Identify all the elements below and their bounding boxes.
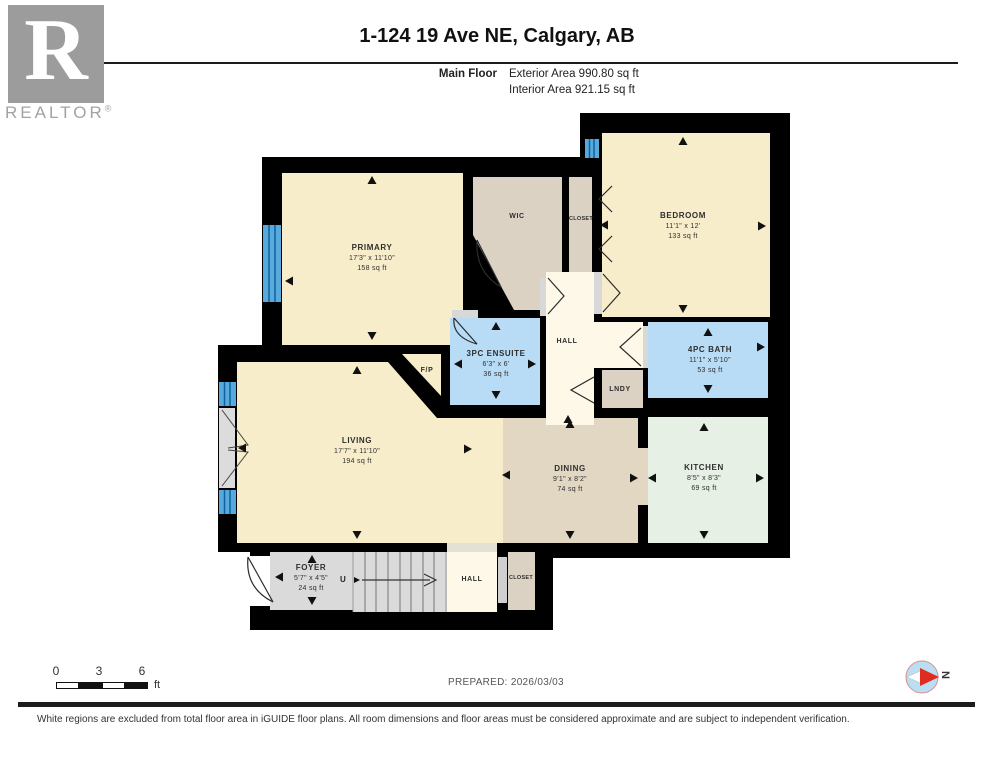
- floor-plan-svg: [0, 0, 994, 768]
- room-label-fireplace: F/P: [421, 366, 434, 376]
- room-label-dining: DINING 9'1" x 8'2" 74 sq ft: [553, 463, 587, 495]
- room-label-closet-lower: CLOSET: [509, 575, 533, 583]
- scale-bar: [56, 682, 148, 689]
- window-primary: [263, 225, 281, 302]
- floor-plan-page: R REALTOR® 1-124 19 Ave NE, Calgary, AB …: [0, 0, 994, 768]
- room-label-hall-lower: HALL: [461, 575, 482, 585]
- room-label-foyer: FOYER 5'7" x 4'5" 24 sq ft: [294, 562, 328, 594]
- room-label-closet-upper: CLOSET: [569, 216, 593, 224]
- prepared-date: PREPARED: 2026/03/03: [448, 677, 564, 688]
- window-bedroom: [585, 139, 599, 158]
- window-living-lower: [219, 490, 236, 514]
- bedroom-door-gap: [594, 272, 602, 314]
- footer-rule: [18, 702, 975, 707]
- compass-north-label: N: [939, 671, 951, 679]
- kitchen-doorway: [638, 448, 648, 505]
- scale-tick-6: 6: [132, 664, 152, 678]
- scale-tick-0: 0: [46, 664, 66, 678]
- hall-primary-door-gap: [540, 278, 546, 316]
- entry-notch: [238, 556, 270, 606]
- window-living-upper: [219, 382, 236, 406]
- scale-unit-label: ft: [154, 679, 160, 691]
- room-label-living: LIVING 17'7" x 11'10" 194 sq ft: [334, 435, 380, 467]
- stairs-up-label: U: [340, 575, 346, 584]
- room-label-bath: 4PC BATH 11'1" x 5'10" 53 sq ft: [688, 344, 732, 376]
- closet-lower-door: [498, 557, 507, 603]
- room-label-lndy: LNDY: [609, 385, 630, 395]
- room-floor-hall-upper: [546, 272, 594, 425]
- scale-tick-3: 3: [89, 664, 109, 678]
- bath-door-gap: [643, 326, 648, 368]
- room-label-ensuite: 3PC ENSUITE 6'3" x 6' 36 sq ft: [466, 348, 525, 380]
- room-label-kitchen: KITCHEN 8'5" x 8'3" 69 sq ft: [684, 462, 724, 494]
- disclaimer-text: White regions are excluded from total fl…: [37, 714, 947, 725]
- hall-lower-threshold: [447, 543, 497, 552]
- room-label-primary: PRIMARY 17'3" x 11'10" 158 sq ft: [349, 242, 395, 274]
- ensuite-door-gap: [452, 310, 478, 318]
- room-label-wic: WIC: [509, 212, 524, 222]
- room-label-hall-upper: HALL: [556, 337, 577, 347]
- room-label-bedroom: BEDROOM 11'1" x 12' 133 sq ft: [660, 210, 706, 242]
- compass-icon: [906, 661, 939, 693]
